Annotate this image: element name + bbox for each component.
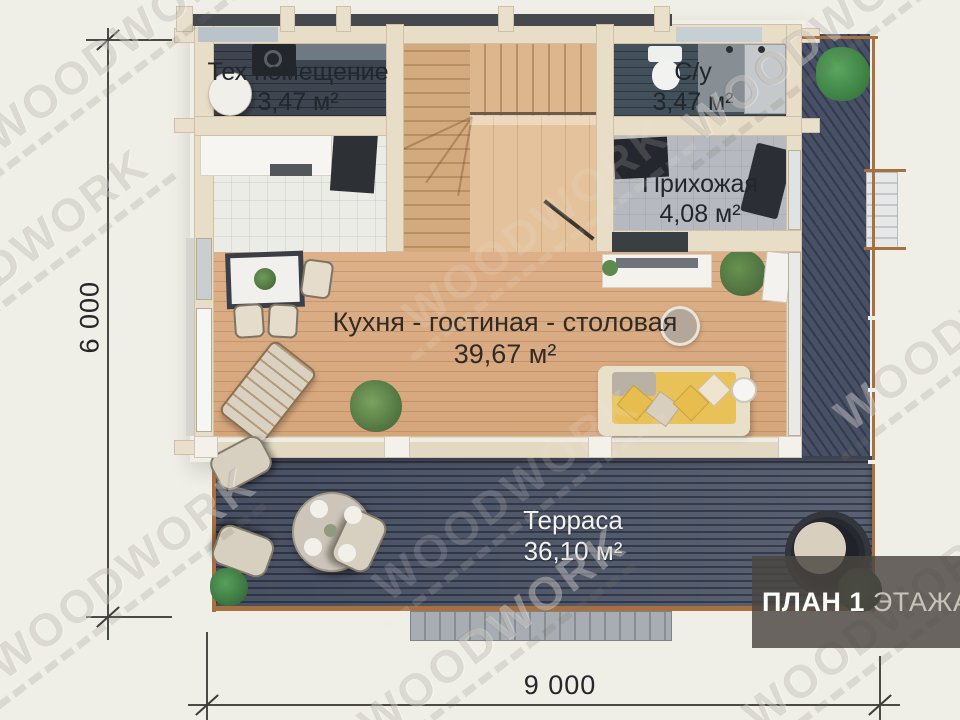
room-area: 39,67 м² [305,339,705,371]
log-end-tab [280,6,295,32]
log-end-tab [336,6,351,32]
plate [344,506,362,524]
dimension-label-width: 9 000 [500,670,620,701]
plan-title-bold: ПЛАН 1 [762,587,865,618]
dimension-label-height: 6 000 [75,294,106,354]
stair-flight-left [404,24,470,252]
log-end-tab [176,6,193,32]
rail-post [868,460,877,464]
porch-post [194,436,218,458]
porch-rail [864,169,906,172]
room-name: С/у [603,58,783,88]
room-area: 4,08 м² [610,200,790,230]
dining-chair [233,303,265,339]
stair-landing [470,116,596,252]
entrance-steps [866,172,898,250]
bush [816,47,870,101]
glazing-line [194,438,802,442]
porch-rail [802,36,878,39]
dimension-tick [86,39,172,41]
porch-post [588,436,612,458]
left-window [196,238,212,300]
plant [602,260,618,276]
watermark-house-icon: ⌂ [0,652,4,712]
room-label-tech: Тех помещение 3,47 м² [198,58,398,117]
log-end-tab [174,440,196,455]
room-label-living: Кухня - гостиная - столовая 39,67 м² [305,307,705,371]
room-name: Кухня - гостиная - столовая [305,307,705,339]
room-area: 3,47 м² [603,88,783,118]
rail-post [868,388,877,392]
log-end-tab [498,6,514,32]
room-name: Терраса [478,505,668,536]
room-label-hallway: Прихожая 4,08 м² [610,170,790,229]
plate [310,500,328,518]
porch-rail [864,247,906,250]
plant [720,250,766,296]
table-centerpiece [324,524,337,537]
porch-post [384,436,410,458]
room-name: Тех помещение [198,58,398,88]
kitchen-counter-dark [330,129,378,194]
plan-title-badge: ПЛАН 1 ЭТАЖА [752,556,960,648]
dining-chair [300,258,335,300]
faucet-icon [758,46,765,53]
plan-title-rest: ЭТАЖА [873,587,960,618]
plate [338,544,356,562]
table-plant [254,268,276,290]
left-window [196,308,212,432]
floor-plan-stage: WOODWORK WOODWORK WOODWORK WOODWORK WOOD… [0,0,960,720]
stair-glass-balustrade [470,115,596,125]
right-window [788,252,801,436]
doorway-opening [612,232,688,252]
porch-post [778,436,802,458]
interior-wall [598,116,802,136]
faucet-icon [726,46,733,53]
dining-chair [267,303,299,339]
top-wall-window [676,27,762,42]
log-end-tab [174,118,196,133]
dimension-tick [86,616,172,618]
room-label-terrace: Терраса 36,10 м² [478,505,668,566]
porch-rail [872,36,875,612]
tv [616,258,698,268]
watermark-house-icon: ⌂ [318,712,374,720]
kitchen-sink [270,164,312,176]
room-area: 3,47 м² [198,88,398,118]
interior-wall [194,116,400,136]
sofa-side-table [731,377,757,403]
dimension-line-vertical [107,28,109,640]
plate [304,538,322,556]
log-end-tab [800,118,820,133]
dimension-line-horizontal [188,704,900,706]
dimension-tick [879,656,881,720]
room-label-bathroom: С/у 3,47 м² [603,58,783,117]
top-wall-window [198,27,278,42]
room-area: 36,10 м² [478,536,668,567]
rail-post [868,316,877,320]
room-name: Прихожая [610,170,790,200]
palm-plant [350,380,402,432]
bush [210,568,248,606]
log-end-tab [654,6,670,32]
terrace-step [410,611,672,641]
